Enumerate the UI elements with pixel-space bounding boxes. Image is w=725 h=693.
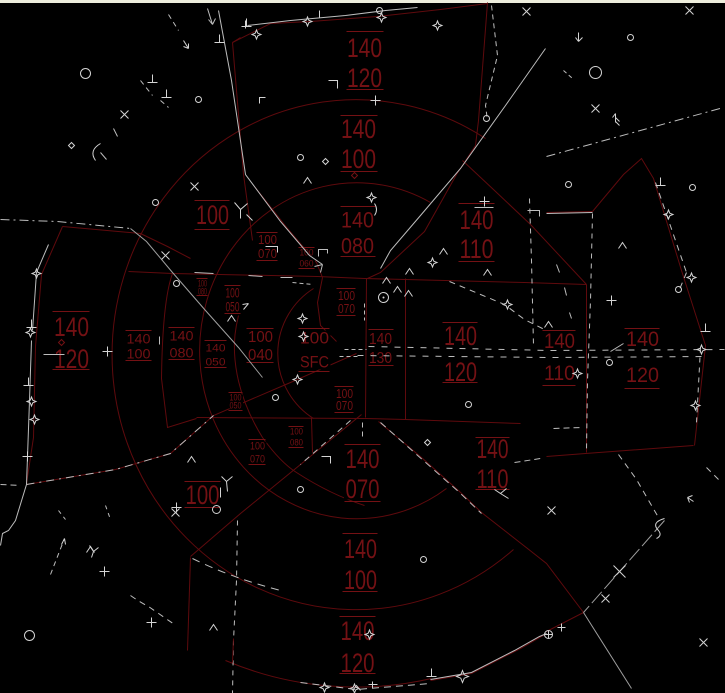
svg-text:070: 070 [336, 399, 353, 413]
svg-text:140: 140 [626, 328, 659, 351]
svg-text:100: 100 [248, 329, 273, 346]
svg-text:050: 050 [226, 299, 240, 315]
svg-text:040: 040 [248, 347, 273, 364]
svg-text:100: 100 [196, 200, 229, 230]
svg-text:140: 140 [347, 33, 382, 63]
svg-text:070: 070 [258, 247, 277, 261]
svg-text:080: 080 [290, 438, 303, 448]
svg-text:080: 080 [170, 345, 194, 361]
svg-text:070: 070 [346, 474, 380, 504]
svg-text:140: 140 [477, 434, 509, 464]
svg-text:140: 140 [344, 534, 377, 564]
svg-text:050: 050 [206, 357, 226, 369]
svg-text:100: 100 [250, 441, 265, 453]
svg-text:130: 130 [369, 350, 392, 367]
svg-text:120: 120 [54, 344, 89, 374]
svg-text:070: 070 [250, 454, 265, 466]
svg-text:100: 100 [344, 565, 377, 595]
svg-text:140: 140 [206, 343, 226, 355]
svg-text:100: 100 [186, 480, 220, 510]
svg-text:100: 100 [338, 289, 355, 303]
svg-text:SFC: SFC [300, 353, 329, 372]
svg-text:050: 050 [230, 401, 242, 411]
svg-text:100: 100 [341, 144, 376, 174]
svg-text:140: 140 [444, 321, 477, 351]
svg-text:140: 140 [127, 331, 151, 347]
svg-text:120: 120 [626, 364, 659, 387]
svg-text:140: 140 [460, 205, 494, 235]
svg-text:120: 120 [341, 648, 375, 678]
svg-text:100: 100 [127, 346, 151, 362]
svg-text:140: 140 [341, 208, 374, 233]
svg-text:110: 110 [477, 464, 509, 494]
svg-text:080: 080 [341, 234, 374, 259]
svg-text:120: 120 [444, 357, 477, 387]
svg-text:100: 100 [290, 427, 303, 437]
svg-text:080: 080 [198, 287, 207, 297]
svg-text:060: 060 [300, 259, 314, 269]
svg-text:110: 110 [460, 234, 494, 264]
svg-text:120: 120 [347, 63, 382, 93]
svg-text:070: 070 [338, 302, 355, 316]
svg-text:140: 140 [170, 328, 194, 344]
svg-text:140: 140 [369, 331, 392, 348]
svg-text:140: 140 [346, 444, 380, 474]
svg-text:140: 140 [54, 312, 89, 342]
svg-text:110: 110 [544, 362, 575, 385]
svg-text:140: 140 [544, 330, 575, 353]
svg-text:140: 140 [341, 114, 376, 144]
svg-text:100: 100 [258, 233, 277, 247]
